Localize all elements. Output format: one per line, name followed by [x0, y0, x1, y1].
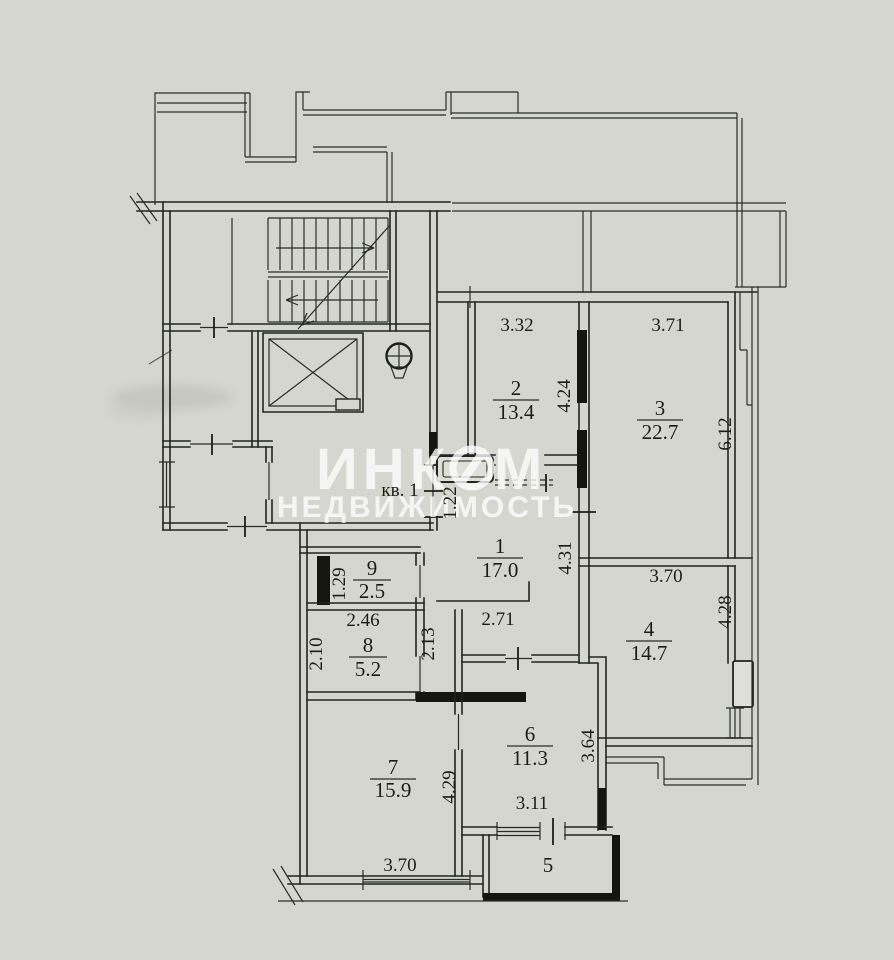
dim-room3-depth: 6.12: [715, 417, 736, 450]
hall-nook: [437, 582, 529, 601]
adjacent-double-lines: [157, 103, 247, 112]
balcony5-bottom: [483, 893, 620, 901]
adjacent-notch: [296, 92, 310, 162]
adjacent-structure-bottom-right: [606, 757, 752, 785]
room-number: 2: [511, 376, 522, 400]
shear-wall: [598, 788, 606, 830]
dim-room8-width: 2.46: [346, 610, 379, 631]
dim-room3-width: 3.71: [651, 315, 684, 336]
room-8-label: 8 5.2: [349, 633, 387, 681]
wall-break-hatch-bottom: [273, 866, 303, 905]
left-wall-tick: [149, 350, 172, 364]
room-number: 7: [388, 755, 399, 779]
left-wall-window: [159, 462, 175, 507]
room9-top-wall: [300, 547, 420, 553]
room-area: 22.7: [642, 420, 679, 444]
dim-room2-depth: 4.24: [554, 379, 575, 413]
room-area: 13.4: [498, 400, 535, 424]
elevator-cross: [269, 339, 357, 406]
adjacent-wall: [245, 93, 296, 162]
room-area: 15.9: [375, 778, 412, 802]
watermark: ИНК М НЕДВИЖИМОСТЬ: [277, 437, 577, 524]
room-number: 5: [543, 853, 554, 877]
room-5-label: 5: [543, 853, 554, 877]
dim-hall-width: 2.71: [481, 609, 514, 630]
left-party-wall: [300, 523, 307, 884]
adjacent-structure-top: [155, 92, 786, 292]
dim-room2-width: 3.32: [500, 315, 533, 336]
shaft-wall: [468, 302, 475, 455]
dim-room8-depth-left: 2.10: [306, 637, 327, 670]
balcony-window: [497, 822, 565, 840]
dim-room9-depth: 1.29: [329, 567, 350, 600]
floor-plan-svg: ИНК М НЕДВИЖИМОСТЬ кв. 1 1 17.0 2 13.4 3…: [0, 0, 894, 960]
stair-risers-upper: [268, 218, 388, 270]
room-4-label: 4 14.7: [626, 617, 672, 665]
dim-room7-depth: 4.29: [439, 770, 460, 803]
room-area: 14.7: [631, 641, 668, 665]
dim-room6-depth: 3.64: [578, 729, 599, 763]
room-area: 11.3: [512, 746, 548, 770]
balcony5-left-wall: [483, 835, 489, 897]
scan-smudge: [110, 385, 232, 418]
stair-arrow-up: [276, 243, 374, 253]
room-7-label: 7 15.9: [370, 755, 416, 802]
room-9-label: 9 2.5: [353, 556, 391, 603]
top-outer-wall: [437, 292, 757, 302]
stair-right-wall: [390, 211, 396, 331]
room-3-label: 3 22.7: [637, 396, 683, 444]
room-number: 3: [655, 396, 666, 420]
dim-room6-width: 3.11: [516, 793, 549, 814]
adjacent-right-wing: [452, 203, 786, 292]
adjacent-top-right: [451, 113, 742, 287]
staircase: [232, 211, 396, 331]
elevator: [263, 333, 363, 412]
room-number: 8: [363, 633, 374, 657]
adjacent-shaft: [313, 147, 392, 203]
room-number: 6: [525, 722, 536, 746]
stair-risers-lower: [268, 280, 388, 322]
room-area: 5.2: [355, 657, 381, 681]
room-1-label: 1 17.0: [477, 534, 523, 582]
dim-room4-width: 3.70: [649, 566, 682, 587]
room-number: 4: [644, 617, 655, 641]
dim-room7-width: 3.70: [383, 855, 416, 876]
room-number: 9: [367, 556, 378, 580]
adjacent-long-wall: [303, 110, 446, 115]
shear-wall: [577, 330, 587, 403]
dim-hall-depth: 4.31: [555, 541, 576, 574]
dim-room4-depth: 4.28: [715, 595, 736, 628]
dim-entry-opening: 1.22: [440, 486, 461, 519]
watermark-subtitle: НЕДВИЖИМОСТЬ: [277, 491, 577, 524]
elevator-door: [336, 399, 360, 410]
adjacent-notch-right: [446, 92, 518, 115]
labels: кв. 1 1 17.0 2 13.4 3 22.7 4 14.7 5 6: [306, 315, 736, 877]
room8-bottom-wall: [307, 692, 420, 700]
shear-wall: [416, 692, 526, 702]
wall-break-hatch-top: [130, 193, 157, 224]
stair-bottom-wall: [163, 523, 433, 530]
room-2-label: 2 13.4: [493, 376, 539, 424]
adjacent-outline: [155, 93, 250, 205]
balcony-door-leaf: [733, 661, 753, 707]
store-room-wall: [252, 331, 258, 447]
balcony5-right: [612, 835, 620, 901]
apartment-number-label: кв. 1: [381, 480, 418, 501]
floor-plan-scan: ИНК М НЕДВИЖИМОСТЬ кв. 1 1 17.0 2 13.4 3…: [0, 0, 894, 960]
stair-top-wall: [137, 202, 450, 211]
right-balconies: [735, 287, 758, 785]
room-area: 17.0: [482, 558, 519, 582]
room3-room4-wall: [579, 558, 752, 566]
room4-window: [726, 708, 744, 738]
dim-room8-depth-right: 2.13: [418, 627, 439, 660]
shear-wall: [577, 430, 587, 488]
room4-bottom-wall: [598, 738, 752, 746]
room-number: 1: [495, 534, 506, 558]
room-area: 2.5: [359, 579, 385, 603]
room-6-label: 6 11.3: [507, 722, 553, 770]
balcony3-inner-edge: [740, 292, 752, 405]
garbage-chute-icon: [387, 344, 412, 379]
